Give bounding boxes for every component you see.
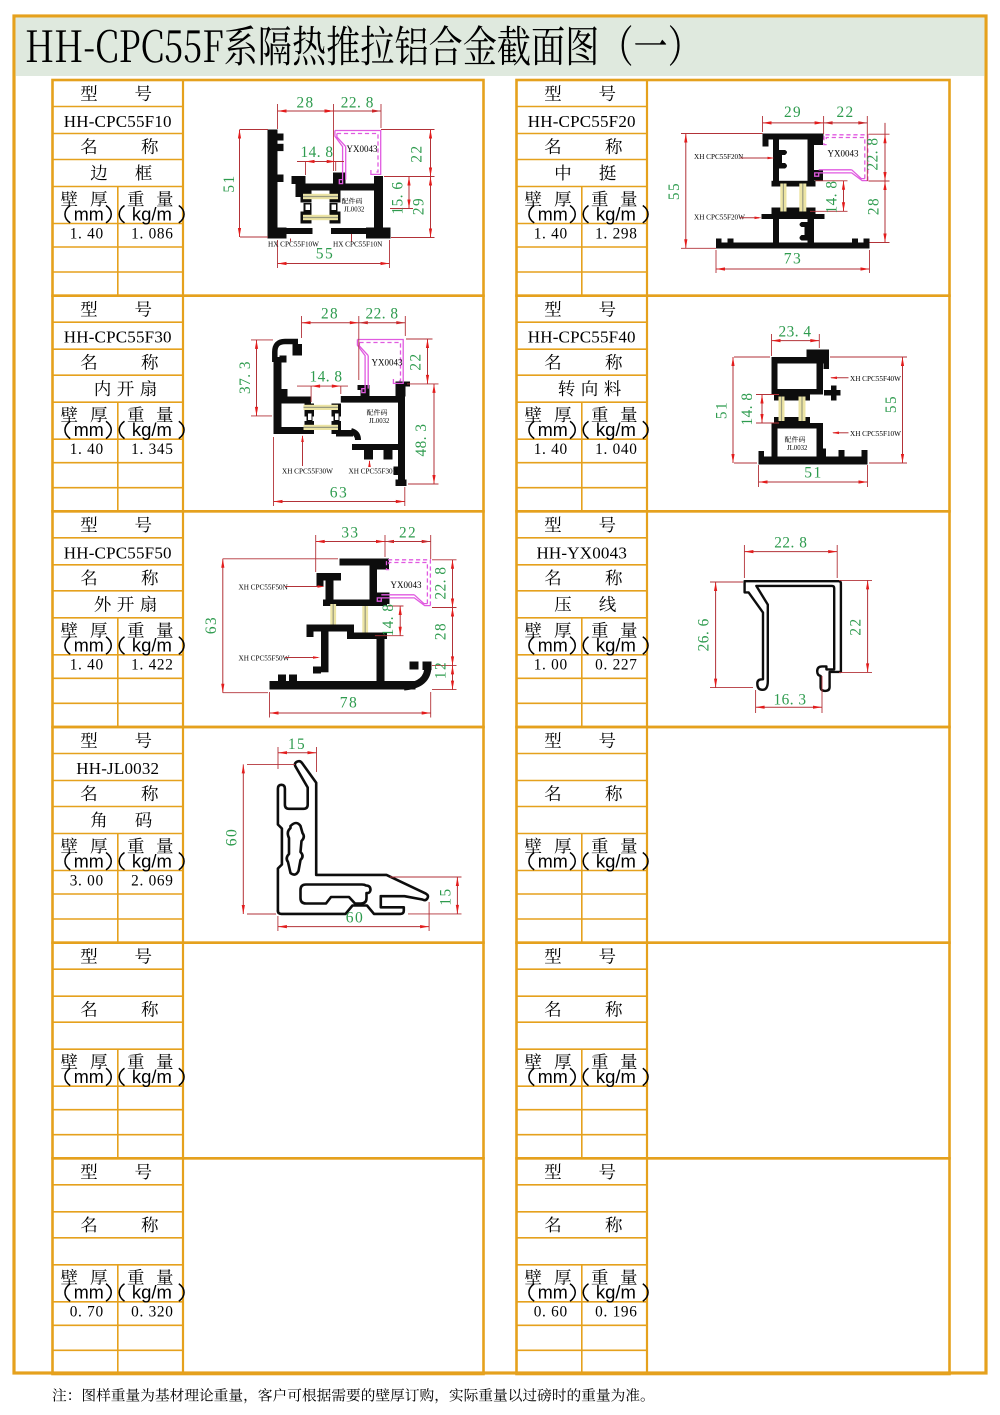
svg-text:YX0043: YX0043: [372, 358, 403, 368]
svg-text:kg/m: kg/m: [596, 1066, 636, 1087]
svg-text:14. 8: 14. 8: [300, 144, 333, 161]
svg-text:73: 73: [784, 251, 802, 268]
svg-text:1. 40: 1. 40: [534, 441, 568, 458]
svg-text:HX CPC55F10N: HX CPC55F10N: [333, 240, 383, 248]
svg-text:15: 15: [438, 887, 455, 905]
svg-text:JL0032: JL0032: [787, 445, 808, 452]
svg-text:1. 40: 1. 40: [70, 441, 104, 458]
svg-text:XH CPC55F50W: XH CPC55F50W: [239, 655, 290, 663]
svg-text:63: 63: [330, 485, 348, 502]
svg-text:mm: mm: [74, 636, 104, 656]
svg-text:1. 40: 1. 40: [70, 657, 104, 674]
svg-text:60: 60: [224, 828, 241, 846]
svg-text:22: 22: [848, 617, 865, 635]
svg-text:XH CPC55F20N: XH CPC55F20N: [694, 153, 744, 161]
svg-text:XH CPC55F10W: XH CPC55F10W: [850, 430, 901, 438]
svg-text:mm: mm: [538, 1283, 568, 1303]
svg-text:mm: mm: [74, 420, 104, 440]
svg-text:51: 51: [804, 465, 822, 482]
svg-text:78: 78: [340, 695, 358, 712]
svg-text:0. 70: 0. 70: [70, 1304, 104, 1321]
svg-text:mm: mm: [538, 204, 568, 224]
svg-text:28: 28: [321, 306, 339, 323]
svg-text:kg/m: kg/m: [596, 203, 636, 224]
svg-text:51: 51: [221, 174, 238, 192]
svg-text:14. 8: 14. 8: [739, 392, 756, 425]
svg-text:kg/m: kg/m: [596, 1282, 636, 1303]
svg-text:14. 8: 14. 8: [380, 603, 397, 636]
svg-text:23. 4: 23. 4: [778, 324, 811, 341]
svg-text:mm: mm: [538, 636, 568, 656]
svg-text:HH-CPC55F40: HH-CPC55F40: [528, 328, 636, 347]
svg-text:15. 6: 15. 6: [390, 181, 407, 214]
svg-text:14. 8: 14. 8: [309, 369, 342, 386]
svg-text:22. 8: 22. 8: [865, 137, 882, 170]
svg-text:28: 28: [866, 197, 883, 215]
svg-text:mm: mm: [74, 1283, 104, 1303]
svg-text:22. 8: 22. 8: [433, 566, 450, 599]
svg-text:0. 60: 0. 60: [534, 1304, 568, 1321]
svg-text:YX0043: YX0043: [828, 149, 859, 159]
svg-text:1. 086: 1. 086: [131, 225, 173, 242]
svg-text:22. 8: 22. 8: [365, 306, 398, 323]
svg-text:0. 196: 0. 196: [595, 1304, 637, 1321]
svg-text:kg/m: kg/m: [132, 635, 172, 656]
svg-text:kg/m: kg/m: [132, 419, 172, 440]
svg-text:mm: mm: [74, 851, 104, 871]
svg-text:55: 55: [883, 395, 900, 413]
svg-text:XH CPC55F40W: XH CPC55F40W: [850, 375, 901, 383]
svg-text:22. 8: 22. 8: [774, 535, 807, 552]
svg-text:2. 069: 2. 069: [131, 872, 173, 889]
svg-text:kg/m: kg/m: [596, 635, 636, 656]
svg-text:mm: mm: [538, 851, 568, 871]
svg-text:kg/m: kg/m: [132, 1066, 172, 1087]
svg-text:1. 40: 1. 40: [70, 225, 104, 242]
svg-text:22: 22: [409, 144, 426, 162]
svg-text:1. 040: 1. 040: [595, 441, 637, 458]
svg-text:mm: mm: [538, 420, 568, 440]
svg-text:16. 3: 16. 3: [773, 691, 806, 708]
svg-text:28: 28: [296, 95, 314, 112]
svg-text:1. 298: 1. 298: [595, 225, 637, 242]
svg-text:HH-YX0043: HH-YX0043: [536, 543, 627, 562]
svg-text:HH-CPC55F10: HH-CPC55F10: [64, 112, 172, 131]
svg-text:XH CPC55F50N: XH CPC55F50N: [239, 584, 289, 592]
svg-text:22: 22: [399, 525, 417, 542]
svg-text:HH-CPC55F20: HH-CPC55F20: [528, 112, 636, 131]
svg-text:mm: mm: [74, 204, 104, 224]
svg-text:kg/m: kg/m: [596, 850, 636, 871]
svg-text:YX0043: YX0043: [347, 144, 378, 154]
svg-text:JL0032: JL0032: [344, 207, 365, 214]
svg-text:kg/m: kg/m: [132, 203, 172, 224]
svg-text:0. 227: 0. 227: [595, 657, 637, 674]
svg-text:1. 40: 1. 40: [534, 225, 568, 242]
svg-text:XH CPC55F30N: XH CPC55F30N: [349, 468, 399, 476]
svg-text:48. 3: 48. 3: [413, 423, 430, 456]
svg-text:kg/m: kg/m: [132, 1282, 172, 1303]
svg-text:37. 3: 37. 3: [237, 361, 254, 394]
svg-text:60: 60: [346, 910, 364, 927]
svg-text:1. 345: 1. 345: [131, 441, 173, 458]
svg-text:14. 8: 14. 8: [824, 180, 841, 213]
svg-text:26. 6: 26. 6: [696, 618, 713, 651]
svg-text:33: 33: [341, 525, 359, 542]
svg-text:1. 422: 1. 422: [131, 657, 173, 674]
svg-text:22: 22: [408, 352, 425, 370]
svg-text:63: 63: [203, 616, 220, 634]
svg-text:XH CPC55F30W: XH CPC55F30W: [282, 468, 333, 476]
svg-text:mm: mm: [538, 1067, 568, 1087]
svg-text:28: 28: [433, 622, 450, 640]
svg-text:12: 12: [433, 661, 450, 679]
svg-text:mm: mm: [74, 1067, 104, 1087]
svg-text:29: 29: [784, 104, 802, 121]
svg-text:YX0043: YX0043: [391, 580, 422, 590]
svg-text:HH-CPC55F50: HH-CPC55F50: [64, 543, 172, 562]
svg-text:HH-CPC55F30: HH-CPC55F30: [64, 328, 172, 347]
svg-text:kg/m: kg/m: [596, 419, 636, 440]
svg-text:15: 15: [288, 736, 306, 753]
svg-text:HH-JL0032: HH-JL0032: [76, 759, 159, 778]
svg-text:3. 00: 3. 00: [70, 872, 104, 889]
svg-text:XH CPC55F20W: XH CPC55F20W: [694, 214, 745, 222]
svg-text:HX CPC55F10W: HX CPC55F10W: [268, 240, 319, 248]
svg-text:51: 51: [714, 401, 731, 419]
svg-text:22. 8: 22. 8: [341, 95, 374, 112]
svg-text:22: 22: [836, 104, 854, 121]
svg-text:55: 55: [666, 182, 683, 200]
svg-text:0. 320: 0. 320: [131, 1304, 173, 1321]
svg-text:JL0032: JL0032: [369, 418, 390, 425]
svg-text:kg/m: kg/m: [132, 850, 172, 871]
svg-text:29: 29: [411, 197, 428, 215]
svg-text:1. 00: 1. 00: [534, 657, 568, 674]
